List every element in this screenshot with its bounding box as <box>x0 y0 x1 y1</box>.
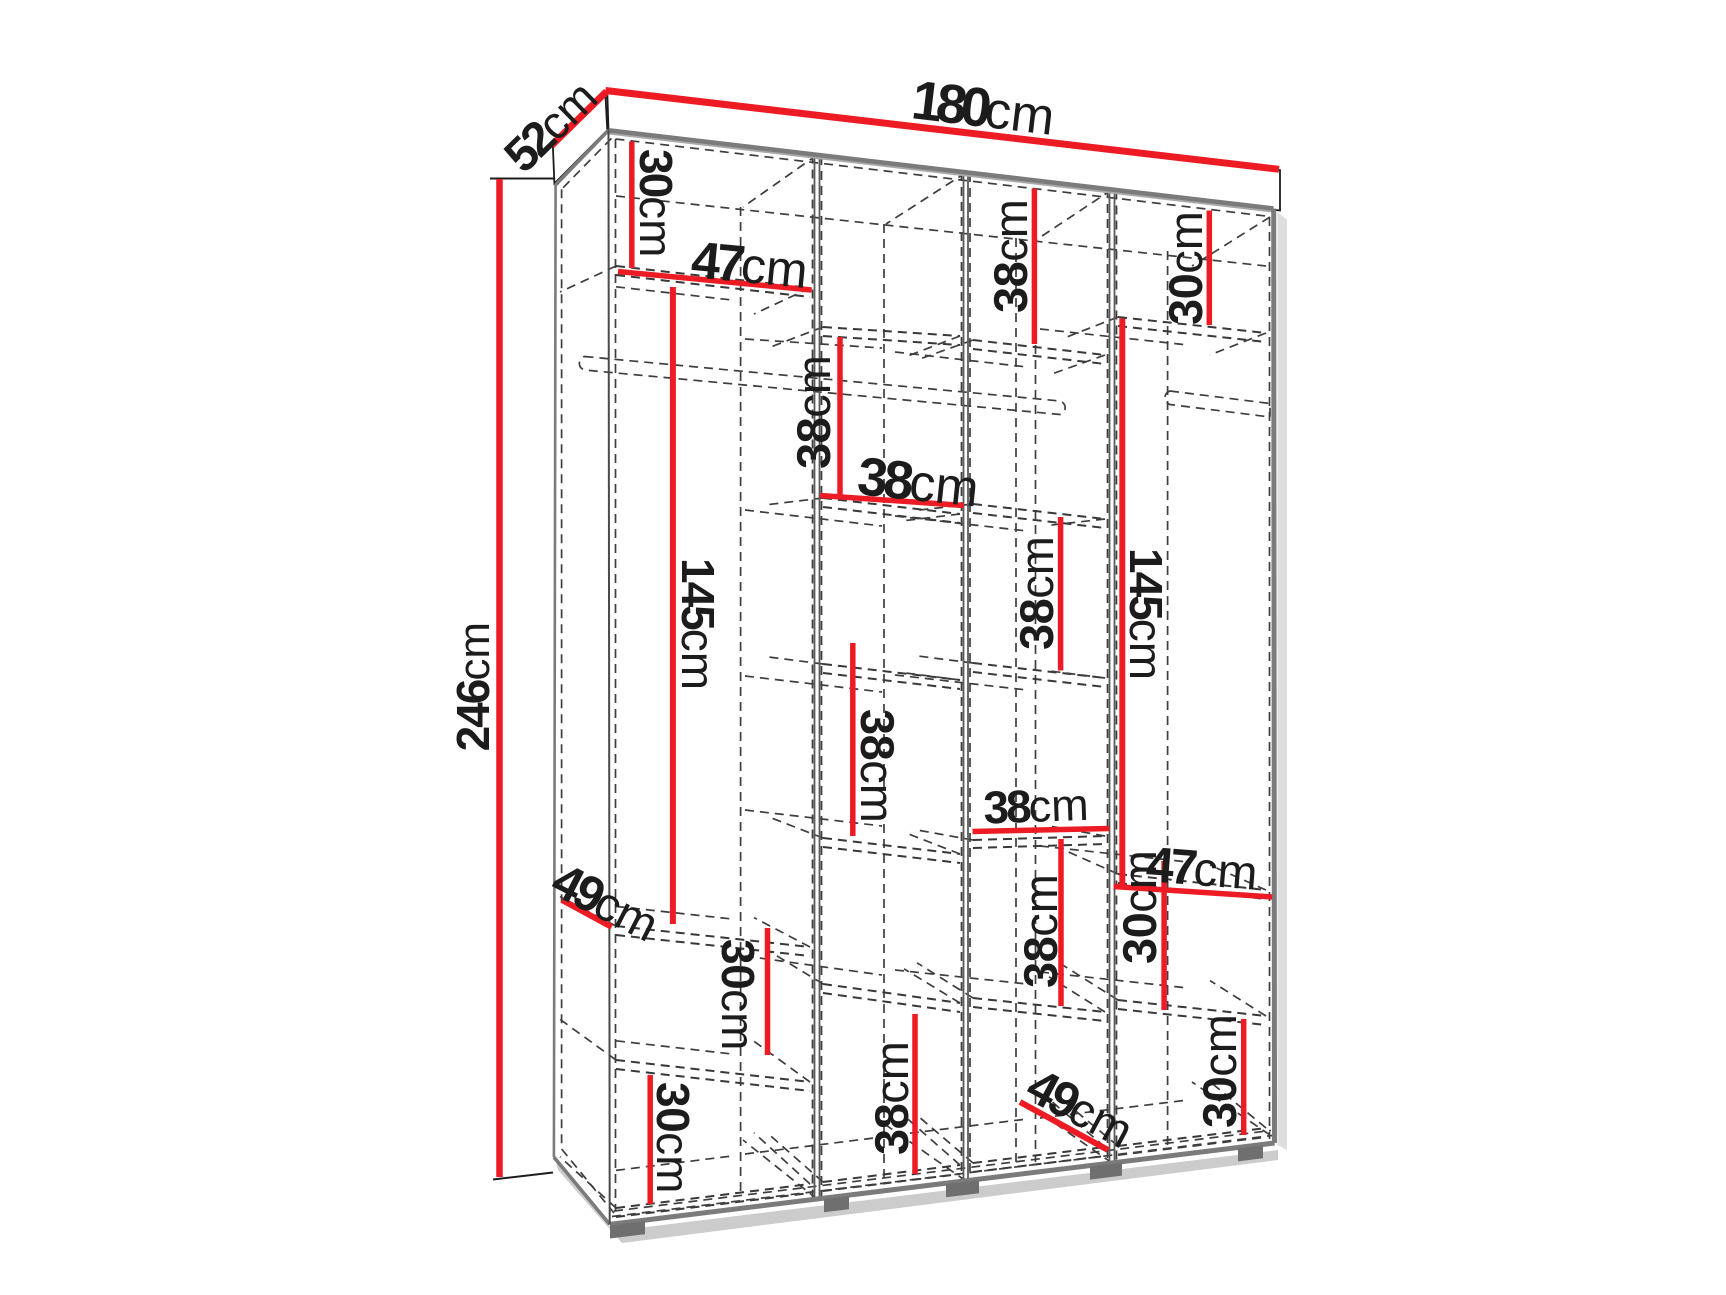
svg-text:30cm: 30cm <box>1159 211 1212 325</box>
svg-text:38cm: 38cm <box>1010 536 1063 650</box>
svg-text:47cm: 47cm <box>689 231 811 300</box>
svg-text:30cm: 30cm <box>647 1082 699 1194</box>
svg-text:30cm: 30cm <box>630 149 682 258</box>
svg-text:145cm: 145cm <box>1120 548 1172 680</box>
svg-text:38cm: 38cm <box>1014 874 1067 988</box>
svg-text:30cm: 30cm <box>1113 850 1166 964</box>
svg-text:145cm: 145cm <box>672 558 724 690</box>
svg-text:30cm: 30cm <box>1193 1014 1246 1128</box>
svg-text:38cm: 38cm <box>851 709 904 823</box>
svg-text:246cm: 246cm <box>447 622 499 751</box>
svg-text:30cm: 30cm <box>712 939 764 1051</box>
svg-text:38cm: 38cm <box>984 199 1037 313</box>
svg-text:38cm: 38cm <box>865 1041 918 1155</box>
svg-text:38cm: 38cm <box>983 778 1090 834</box>
svg-text:38cm: 38cm <box>787 355 840 469</box>
